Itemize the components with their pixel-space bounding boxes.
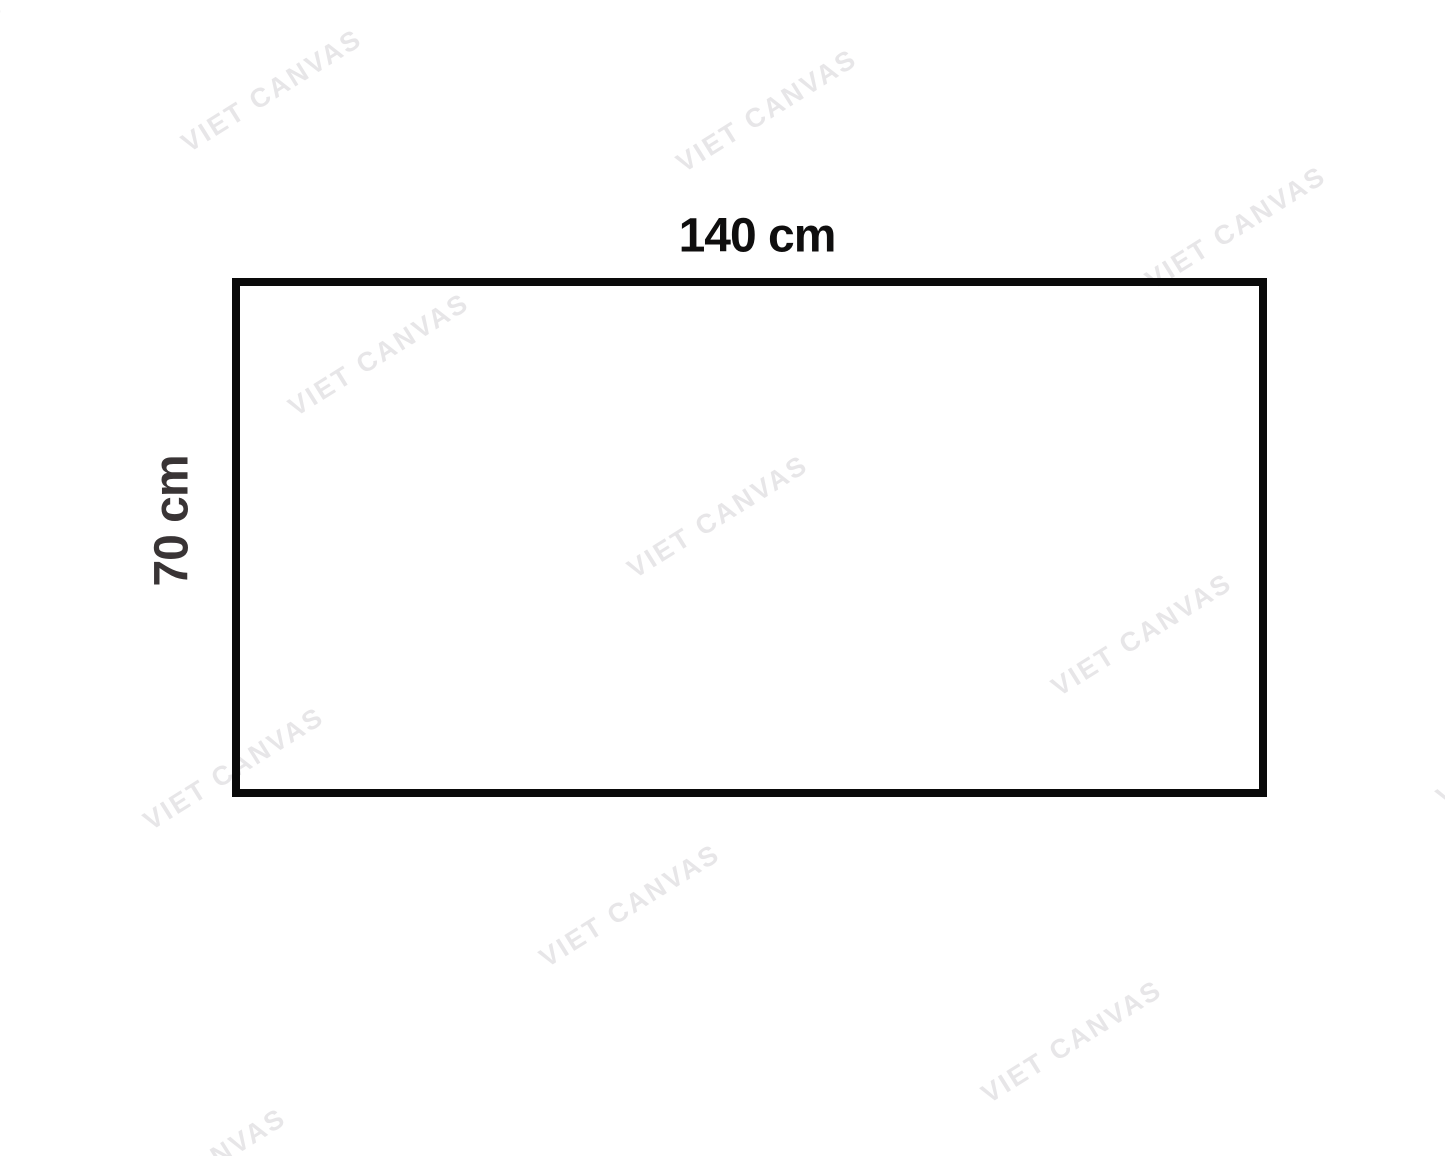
watermark-text: VIET CANVAS <box>176 23 368 159</box>
width-dimension-label: 140 cm <box>679 209 836 264</box>
rectangle-shape <box>232 278 1267 797</box>
watermark-text: VIET CANVAS <box>671 43 863 179</box>
height-dimension-label: 70 cm <box>145 455 200 586</box>
watermark-text: VIET CANVAS <box>0 0 9 127</box>
diagram-canvas: VIET CANVASVIET CANVASVIET CANVASVIET CA… <box>0 0 1445 1156</box>
watermark-text: VIET CANVAS <box>1140 160 1332 296</box>
watermark-text: VIET CANVAS <box>976 974 1168 1110</box>
watermark-text: VIET CANVAS <box>1431 677 1445 813</box>
watermark-text: VIET CANVAS <box>534 838 726 974</box>
watermark-text: VIET CANVAS <box>100 1102 292 1156</box>
